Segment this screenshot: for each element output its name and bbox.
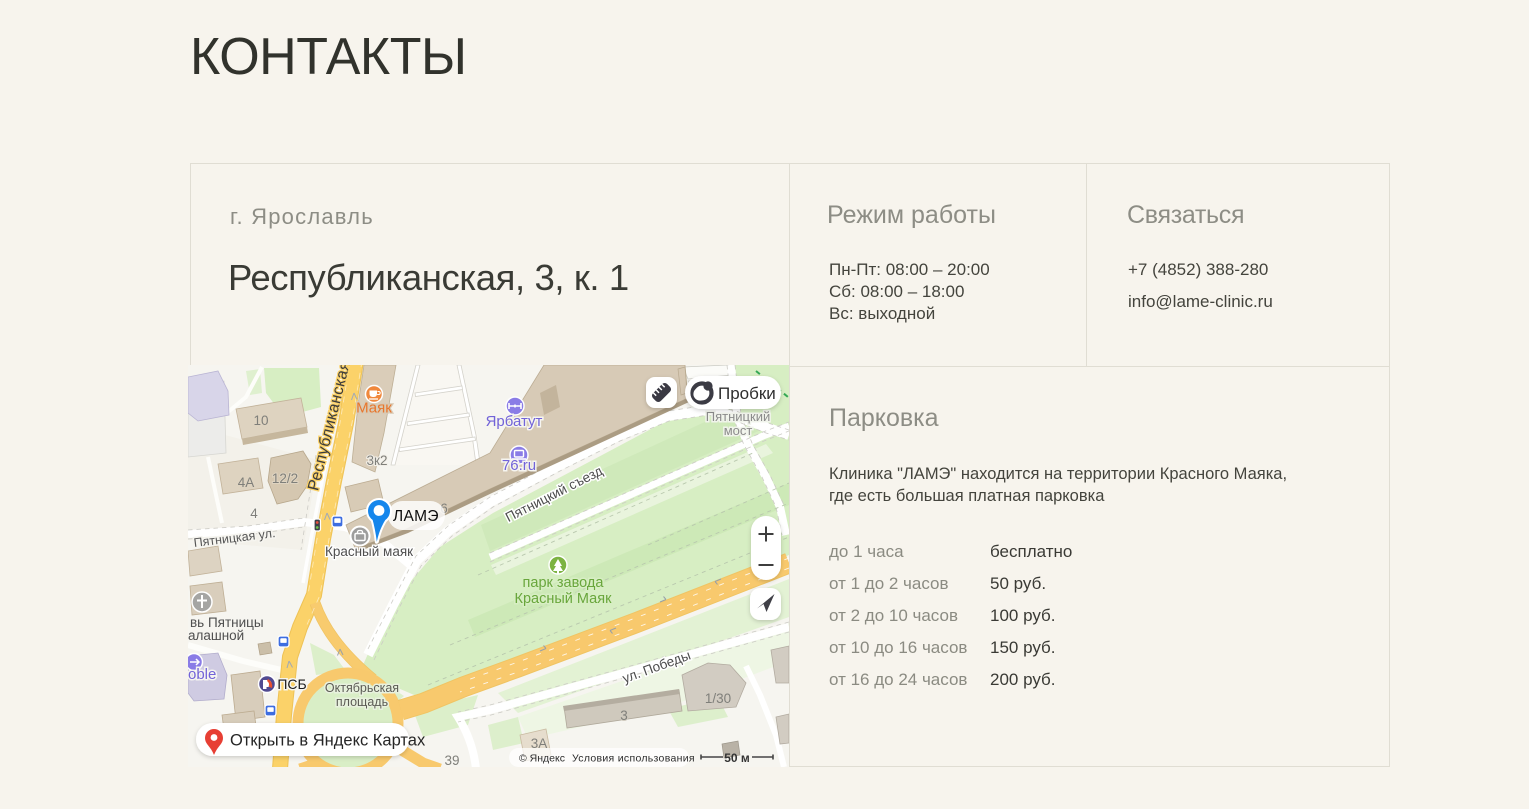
svg-text:10: 10 [253,413,268,428]
svg-text:© Яндекс: © Яндекс [519,753,565,765]
svg-text:50 м: 50 м [724,751,750,765]
svg-text:4А: 4А [238,475,255,490]
svg-text:Октябрьская: Октябрьская [325,681,399,695]
svg-text:Пробки: Пробки [718,384,776,403]
svg-text:Условия использования: Условия использования [572,753,695,765]
svg-text:алашной: алашной [188,628,244,643]
svg-text:Маяк: Маяк [356,400,392,417]
svg-text:Открыть в Яндекс Картах: Открыть в Яндекс Картах [230,732,426,750]
svg-text:ЛАМЭ: ЛАМЭ [393,508,439,525]
svg-text:3: 3 [620,708,628,723]
svg-text:Красный Маяк: Красный Маяк [515,591,613,607]
svg-text:Пятницкий: Пятницкий [706,409,770,424]
svg-text:парк завода: парк завода [523,575,605,591]
svg-text:1/30: 1/30 [705,691,731,706]
svg-text:39: 39 [444,753,459,767]
svg-text:76.ru: 76.ru [502,457,536,474]
svg-text:Красный маяк: Красный маяк [325,544,413,559]
svg-text:Ярбатут: Ярбатут [486,413,543,430]
svg-text:oble: oble [188,666,216,683]
svg-text:3к2: 3к2 [367,453,388,468]
svg-text:ПСБ: ПСБ [277,676,306,692]
svg-text:12/2: 12/2 [272,471,298,486]
svg-text:площадь: площадь [336,695,388,709]
svg-text:мост: мост [724,423,753,438]
svg-text:4: 4 [250,506,258,521]
